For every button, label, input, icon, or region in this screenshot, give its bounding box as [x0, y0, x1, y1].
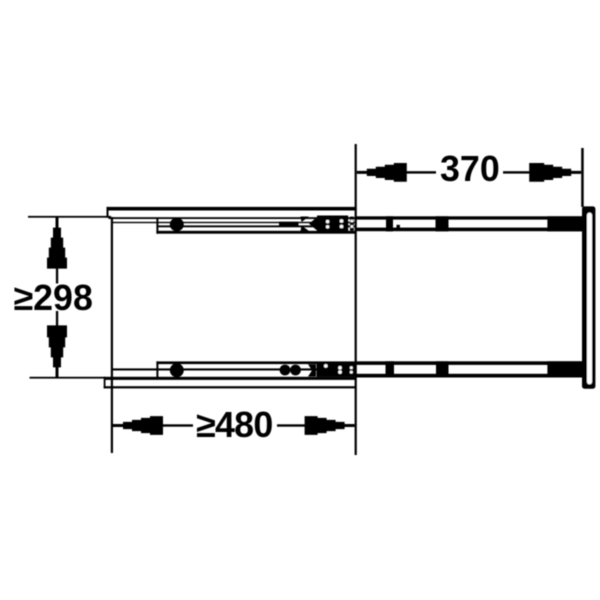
svg-text:370: 370 [440, 149, 500, 189]
svg-text:≥298: ≥298 [14, 278, 93, 318]
svg-text:≥480: ≥480 [196, 405, 273, 445]
